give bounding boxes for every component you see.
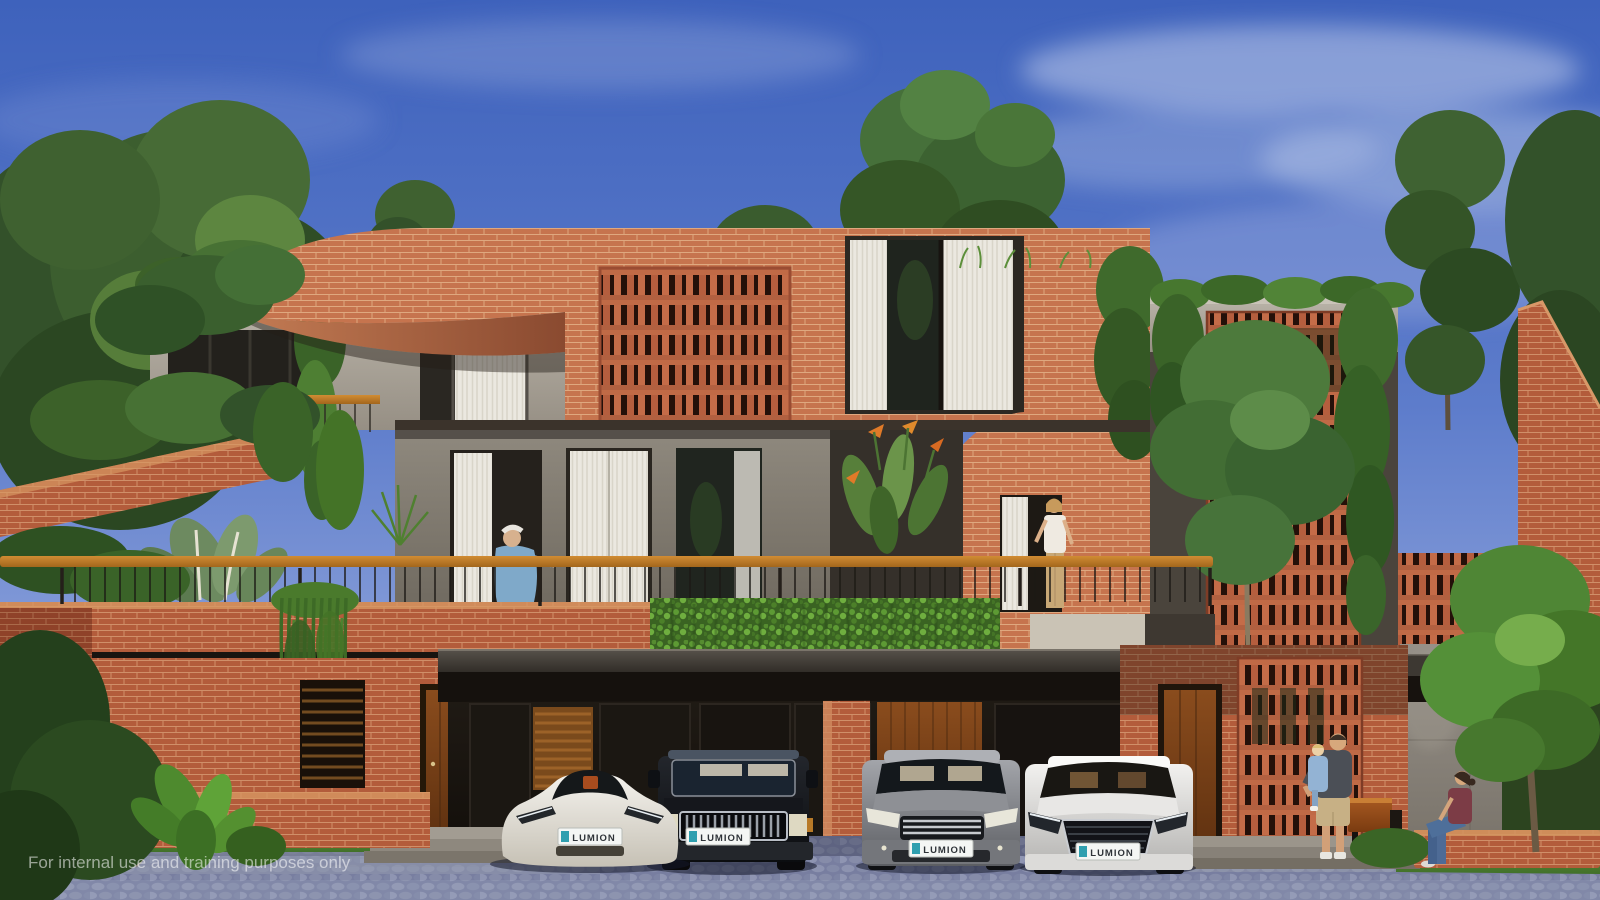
watermark-text: For internal use and training purposes o… <box>28 853 351 872</box>
wood-handrail <box>0 556 1213 567</box>
license-plate-suv: LUMION <box>686 828 750 845</box>
license-plate-white-sedan: LUMION <box>1076 843 1140 860</box>
render-viewport: 1A <box>0 0 1600 900</box>
architectural-render: 1A <box>0 0 1600 900</box>
car-white-sedan: LUMION <box>1020 756 1196 876</box>
plate-text: LUMION <box>700 833 743 844</box>
white-sedan-windshield <box>1040 762 1176 798</box>
sedan-windshield <box>876 759 1006 794</box>
upper-windows <box>845 236 1024 414</box>
plate-text: LUMION <box>923 845 966 856</box>
plate-text: LUMION <box>572 833 615 844</box>
slatted-window-left <box>300 680 365 788</box>
license-plate-roadster: LUMION <box>558 828 622 845</box>
car-gray-sedan: LUMION <box>856 750 1026 874</box>
mid-window-2 <box>566 448 652 612</box>
brick-lattice-panel-top <box>600 268 790 425</box>
license-plate-gray-sedan: LUMION <box>909 840 973 857</box>
plate-text: LUMION <box>1090 848 1133 859</box>
suv-headlight-right <box>789 814 807 836</box>
